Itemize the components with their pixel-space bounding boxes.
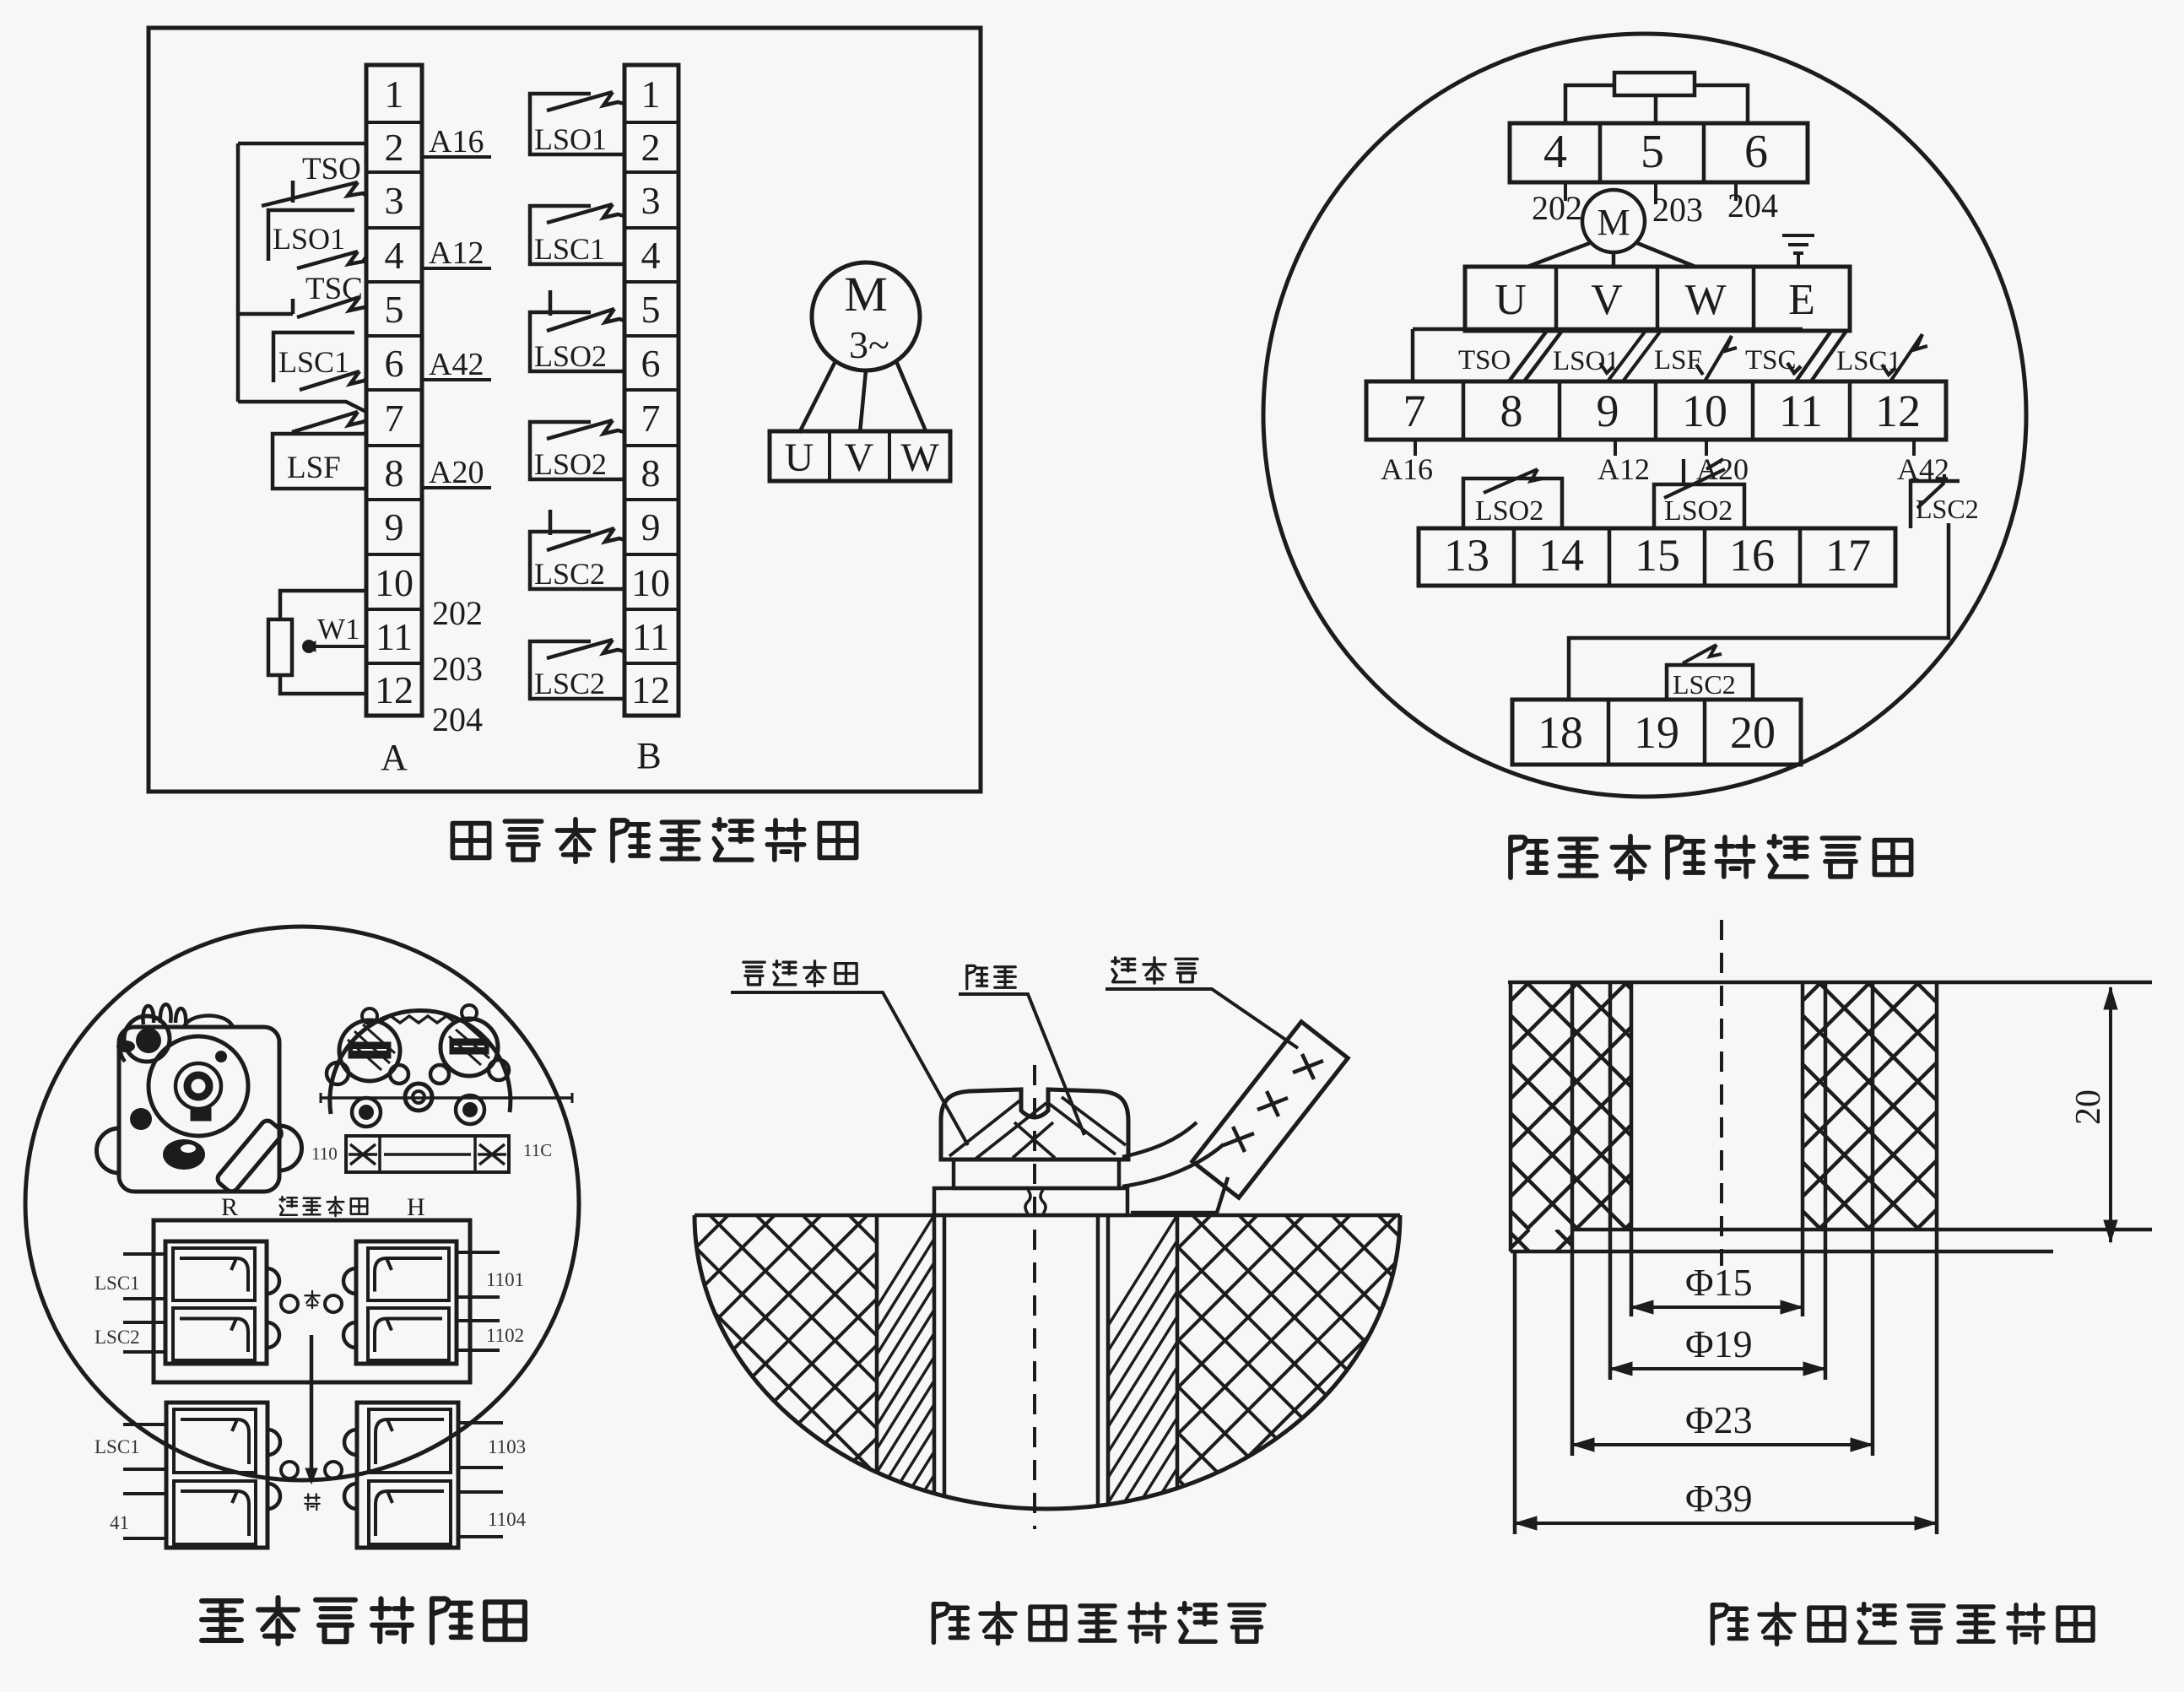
- svg-text:5: 5: [385, 288, 404, 331]
- svg-text:E: E: [1788, 276, 1815, 324]
- svg-text:Φ15: Φ15: [1685, 1261, 1753, 1304]
- svg-text:TSO: TSO: [1458, 345, 1511, 376]
- svg-text:U: U: [1495, 276, 1527, 324]
- svg-text:R: R: [221, 1193, 238, 1221]
- svg-text:LSO2: LSO2: [534, 339, 607, 373]
- svg-text:W: W: [1684, 276, 1726, 324]
- svg-text:LSC1: LSC1: [95, 1436, 140, 1457]
- svg-text:LSC1: LSC1: [95, 1273, 140, 1294]
- svg-text:2: 2: [385, 126, 404, 169]
- svg-text:1102: 1102: [486, 1325, 524, 1346]
- svg-text:LSC1: LSC1: [534, 232, 605, 266]
- svg-text:202: 202: [1532, 189, 1582, 227]
- svg-text:5: 5: [1641, 126, 1664, 178]
- svg-text:7: 7: [641, 397, 661, 440]
- svg-text:4: 4: [641, 234, 661, 277]
- svg-text:15: 15: [1635, 530, 1680, 581]
- svg-text:19: 19: [1634, 707, 1679, 758]
- svg-text:V: V: [1591, 276, 1623, 324]
- svg-text:203: 203: [1652, 191, 1703, 229]
- svg-text:V: V: [845, 435, 874, 480]
- svg-text:LSC2: LSC2: [1916, 494, 1979, 524]
- svg-text:1104: 1104: [488, 1509, 527, 1530]
- svg-text:A16: A16: [429, 124, 484, 159]
- svg-text:A12: A12: [1597, 452, 1650, 486]
- svg-text:TSO: TSO: [302, 152, 361, 186]
- svg-text:U: U: [785, 435, 814, 480]
- svg-text:A: A: [381, 737, 408, 778]
- svg-text:LSC1: LSC1: [278, 345, 349, 379]
- svg-text:14: 14: [1538, 530, 1584, 581]
- svg-text:A20: A20: [429, 455, 484, 490]
- svg-text:2: 2: [641, 126, 661, 169]
- svg-text:6: 6: [385, 342, 404, 385]
- svg-text:3: 3: [641, 179, 661, 222]
- svg-text:W1: W1: [317, 613, 360, 646]
- svg-text:Φ39: Φ39: [1685, 1477, 1753, 1520]
- svg-text:LSC2: LSC2: [534, 557, 605, 591]
- svg-text:M: M: [1597, 202, 1630, 243]
- svg-text:1: 1: [641, 73, 661, 116]
- svg-text:11C: 11C: [523, 1140, 552, 1160]
- svg-text:TSC: TSC: [1745, 345, 1797, 376]
- svg-text:Φ19: Φ19: [1685, 1322, 1753, 1365]
- svg-text:LSC2: LSC2: [1673, 669, 1736, 700]
- svg-text:1101: 1101: [486, 1269, 524, 1290]
- svg-text:LSF: LSF: [1654, 345, 1702, 376]
- svg-text:11: 11: [632, 615, 669, 658]
- svg-text:6: 6: [641, 342, 661, 385]
- svg-text:204: 204: [432, 700, 483, 738]
- svg-text:17: 17: [1825, 530, 1871, 581]
- svg-text:10: 10: [375, 561, 414, 604]
- svg-text:20: 20: [2069, 1089, 2108, 1125]
- svg-text:12: 12: [631, 668, 670, 711]
- svg-text:10: 10: [1682, 386, 1727, 436]
- svg-text:W: W: [900, 435, 939, 480]
- svg-text:13: 13: [1444, 530, 1489, 581]
- svg-text:1: 1: [385, 73, 404, 116]
- svg-text:41: 41: [110, 1512, 129, 1533]
- svg-text:4: 4: [1543, 126, 1567, 178]
- svg-text:1103: 1103: [488, 1436, 526, 1457]
- svg-text:LSO1: LSO1: [534, 122, 607, 156]
- svg-text:203: 203: [432, 650, 483, 688]
- svg-text:4: 4: [385, 234, 404, 277]
- svg-text:10: 10: [631, 561, 670, 604]
- svg-text:20: 20: [1730, 707, 1776, 758]
- svg-text:9: 9: [385, 505, 404, 549]
- svg-text:12: 12: [375, 668, 414, 711]
- svg-text:8: 8: [385, 451, 404, 495]
- svg-text:LSO2: LSO2: [534, 447, 607, 481]
- svg-text:B: B: [636, 735, 661, 776]
- svg-text:A42: A42: [429, 347, 484, 382]
- svg-text:5: 5: [641, 288, 661, 331]
- svg-text:110: 110: [311, 1143, 338, 1164]
- svg-text:12: 12: [1875, 386, 1921, 436]
- svg-text:204: 204: [1727, 186, 1778, 224]
- svg-text:Φ23: Φ23: [1685, 1398, 1753, 1441]
- svg-text:3~: 3~: [849, 323, 889, 366]
- svg-text:6: 6: [1744, 126, 1768, 178]
- svg-text:A16: A16: [1381, 452, 1433, 486]
- svg-text:A12: A12: [429, 235, 484, 271]
- svg-text:LSO1: LSO1: [273, 222, 345, 256]
- svg-text:9: 9: [641, 505, 661, 549]
- svg-text:LSC2: LSC2: [534, 667, 605, 700]
- svg-text:11: 11: [376, 615, 413, 658]
- svg-text:LSO2: LSO2: [1664, 495, 1733, 527]
- svg-text:7: 7: [385, 397, 404, 440]
- svg-text:LSO2: LSO2: [1475, 495, 1543, 527]
- svg-text:LSF: LSF: [287, 451, 341, 485]
- svg-text:8: 8: [1500, 386, 1523, 436]
- svg-text:LSC2: LSC2: [95, 1327, 140, 1348]
- svg-text:8: 8: [641, 451, 661, 495]
- svg-text:M: M: [844, 267, 888, 322]
- svg-text:3: 3: [385, 179, 404, 222]
- svg-text:7: 7: [1403, 386, 1426, 436]
- svg-text:11: 11: [1779, 386, 1823, 436]
- svg-text:18: 18: [1538, 707, 1583, 758]
- svg-text:16: 16: [1729, 530, 1775, 581]
- svg-text:H: H: [407, 1193, 425, 1221]
- svg-text:9: 9: [1597, 386, 1619, 436]
- svg-text:202: 202: [432, 594, 483, 632]
